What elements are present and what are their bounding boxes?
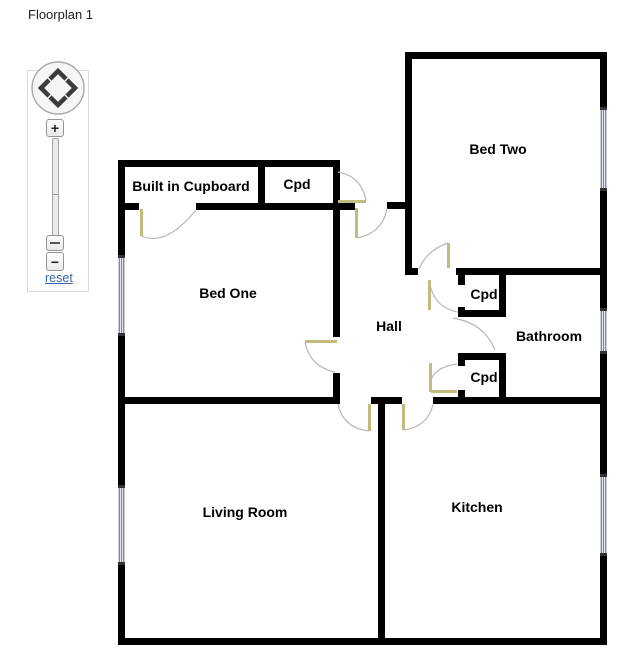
wall (600, 351, 607, 477)
window-bed-one (118, 255, 125, 336)
wall (387, 202, 405, 209)
wall (600, 188, 607, 268)
window-bed-two (600, 107, 607, 191)
room-label-cpd-upper: Cpd (470, 286, 497, 302)
wall (118, 638, 607, 645)
wall (499, 268, 506, 317)
wall (405, 52, 607, 59)
wall (458, 275, 465, 285)
room-label-bathroom: Bathroom (516, 328, 582, 344)
wall (456, 268, 607, 275)
wall (458, 353, 506, 360)
wall (118, 397, 337, 404)
door-arc-bed-two (419, 243, 448, 269)
wall (405, 268, 418, 275)
wall (499, 353, 506, 404)
floorplan-viewer: Floorplan 1 + − reset (0, 0, 620, 658)
wall (118, 562, 125, 645)
door-arc-entrance-outer (338, 172, 366, 200)
door-arc-kitchen (404, 405, 433, 430)
door-arc-bathroom (453, 318, 495, 350)
door-arc-cpd-upper (430, 280, 458, 312)
wall (458, 310, 506, 317)
wall (118, 333, 125, 488)
door-arc-entrance-inner (357, 208, 387, 238)
door-arc-bed-one (305, 342, 335, 372)
wall (333, 210, 340, 337)
wall (600, 553, 607, 645)
wall (600, 52, 607, 110)
door-arc-living-room (338, 404, 369, 431)
wall (371, 397, 402, 404)
room-label-bed-one: Bed One (199, 285, 257, 301)
room-label-hall: Hall (376, 318, 402, 334)
room-label-bed-two: Bed Two (469, 141, 526, 157)
wall (118, 203, 139, 210)
walls (118, 52, 607, 645)
wall (118, 160, 338, 167)
window-kitchen (600, 474, 607, 556)
wall (196, 203, 355, 210)
wall (458, 353, 465, 366)
window-bathroom (600, 308, 607, 354)
wall (405, 52, 412, 268)
room-label-kitchen: Kitchen (451, 499, 502, 515)
door-arc-cupboard (142, 210, 197, 239)
wall (378, 404, 385, 638)
wall (258, 167, 265, 210)
door-arc-cpd-lower (430, 364, 457, 392)
room-label-cpd-top: Cpd (283, 176, 310, 192)
wall (458, 390, 465, 404)
window-living-room (118, 485, 125, 565)
room-label-cpd-lower: Cpd (470, 369, 497, 385)
room-label-built-in-cupboard: Built in Cupboard (132, 178, 249, 194)
room-label-living-room: Living Room (203, 504, 288, 520)
